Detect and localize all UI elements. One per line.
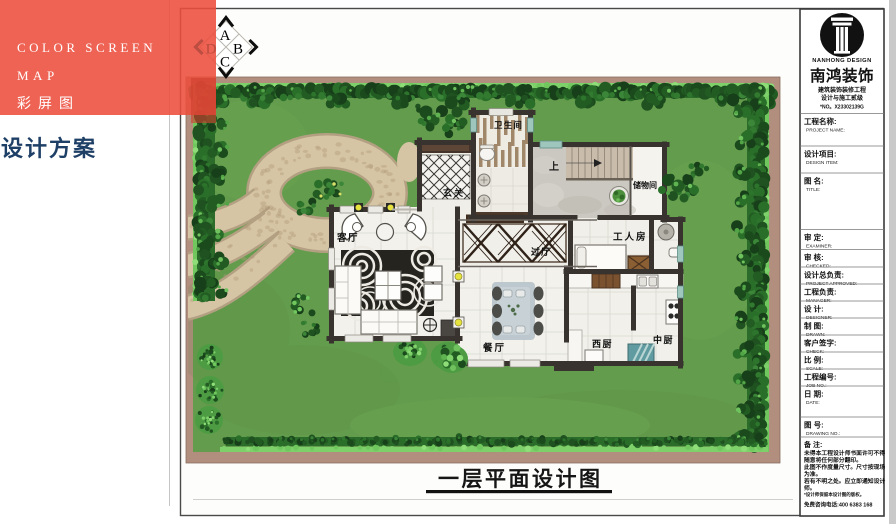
svg-text:上: 上 bbox=[549, 160, 559, 173]
svg-text:西厨: 西厨 bbox=[592, 339, 613, 349]
svg-text:过厅: 过厅 bbox=[531, 246, 551, 257]
svg-text:比 例:: 比 例: bbox=[804, 355, 824, 365]
svg-text:图 号:: 图 号: bbox=[804, 421, 824, 430]
svg-text:图 名:: 图 名: bbox=[804, 176, 824, 186]
svg-text:工程名称:: 工程名称: bbox=[804, 116, 837, 126]
svg-text:审 核:: 审 核: bbox=[804, 252, 824, 262]
svg-text:设计方案: 设计方案 bbox=[1, 136, 97, 161]
svg-text:PROJECT NAME:: PROJECT NAME: bbox=[806, 128, 845, 134]
svg-text:DESIGN ITEM:: DESIGN ITEM: bbox=[806, 160, 839, 166]
svg-text:NANHONG DESIGN: NANHONG DESIGN bbox=[812, 58, 871, 64]
svg-text:设计总负责:: 设计总负责: bbox=[804, 270, 844, 280]
svg-text:南鸿装饰: 南鸿装饰 bbox=[810, 66, 874, 85]
svg-text:*设计师保留本设计图的版权。: *设计师保留本设计图的版权。 bbox=[804, 491, 864, 498]
svg-text:设计项目:: 设计项目: bbox=[804, 149, 837, 159]
svg-text:餐厅: 餐厅 bbox=[482, 342, 506, 354]
svg-text:TITLE:: TITLE: bbox=[806, 187, 820, 193]
svg-text:A: A bbox=[220, 28, 231, 44]
svg-text:储物间: 储物间 bbox=[632, 180, 657, 190]
svg-text:DATE:: DATE: bbox=[806, 400, 820, 406]
svg-text:师。: 师。 bbox=[804, 484, 816, 492]
svg-text:工程负责:: 工程负责: bbox=[804, 287, 837, 297]
svg-text:审 定:: 审 定: bbox=[804, 232, 824, 242]
svg-text:随意将任何部分翻印。: 随意将任何部分翻印。 bbox=[804, 456, 862, 464]
svg-text:COLOR SCREEN: COLOR SCREEN bbox=[17, 40, 156, 55]
svg-text:建筑装饰装修工程: 建筑装饰装修工程 bbox=[818, 86, 866, 94]
svg-text:玄关: 玄关 bbox=[443, 187, 465, 198]
svg-text:D: D bbox=[206, 42, 217, 58]
svg-text:DRAWING NO.:: DRAWING NO.: bbox=[806, 431, 840, 437]
svg-text:一层平面设计图: 一层平面设计图 bbox=[438, 468, 603, 491]
svg-text:卫生间: 卫生间 bbox=[494, 120, 523, 130]
svg-text:客户签字:: 客户签字: bbox=[803, 338, 837, 348]
svg-text:日 期:: 日 期: bbox=[804, 389, 824, 399]
svg-text:EXAMINER:: EXAMINER: bbox=[806, 244, 832, 250]
svg-text:客厅: 客厅 bbox=[336, 232, 359, 244]
svg-text:CHECKED:: CHECKED: bbox=[806, 264, 831, 270]
svg-text:工程编号:: 工程编号: bbox=[804, 372, 837, 382]
svg-text:未得本工程设计师书面许可不得: 未得本工程设计师书面许可不得 bbox=[804, 449, 885, 457]
svg-text:备 注:: 备 注: bbox=[803, 440, 822, 449]
svg-text:B: B bbox=[233, 42, 243, 58]
svg-text:制 图:: 制 图: bbox=[804, 321, 824, 331]
svg-text:为准。: 为准。 bbox=[804, 470, 821, 478]
svg-text:中厨: 中厨 bbox=[653, 334, 674, 345]
svg-text:设 计:: 设 计: bbox=[804, 304, 824, 314]
svg-text:C: C bbox=[220, 55, 230, 71]
svg-text:免费咨询电话:400 6383 168: 免费咨询电话:400 6383 168 bbox=[804, 501, 872, 509]
svg-text:此图不作度量尺寸。尺寸按现场: 此图不作度量尺寸。尺寸按现场 bbox=[804, 463, 885, 471]
svg-text:若有不明之处。应立即通知设计: 若有不明之处。应立即通知设计 bbox=[803, 477, 885, 485]
svg-text:MAP: MAP bbox=[17, 68, 59, 83]
svg-text:彩屏图: 彩屏图 bbox=[17, 95, 80, 111]
svg-text:设计与施工贰级: 设计与施工贰级 bbox=[821, 94, 863, 102]
svg-text:*NO。X23302139G: *NO。X23302139G bbox=[820, 105, 864, 111]
svg-text:工人房: 工人房 bbox=[613, 231, 648, 243]
